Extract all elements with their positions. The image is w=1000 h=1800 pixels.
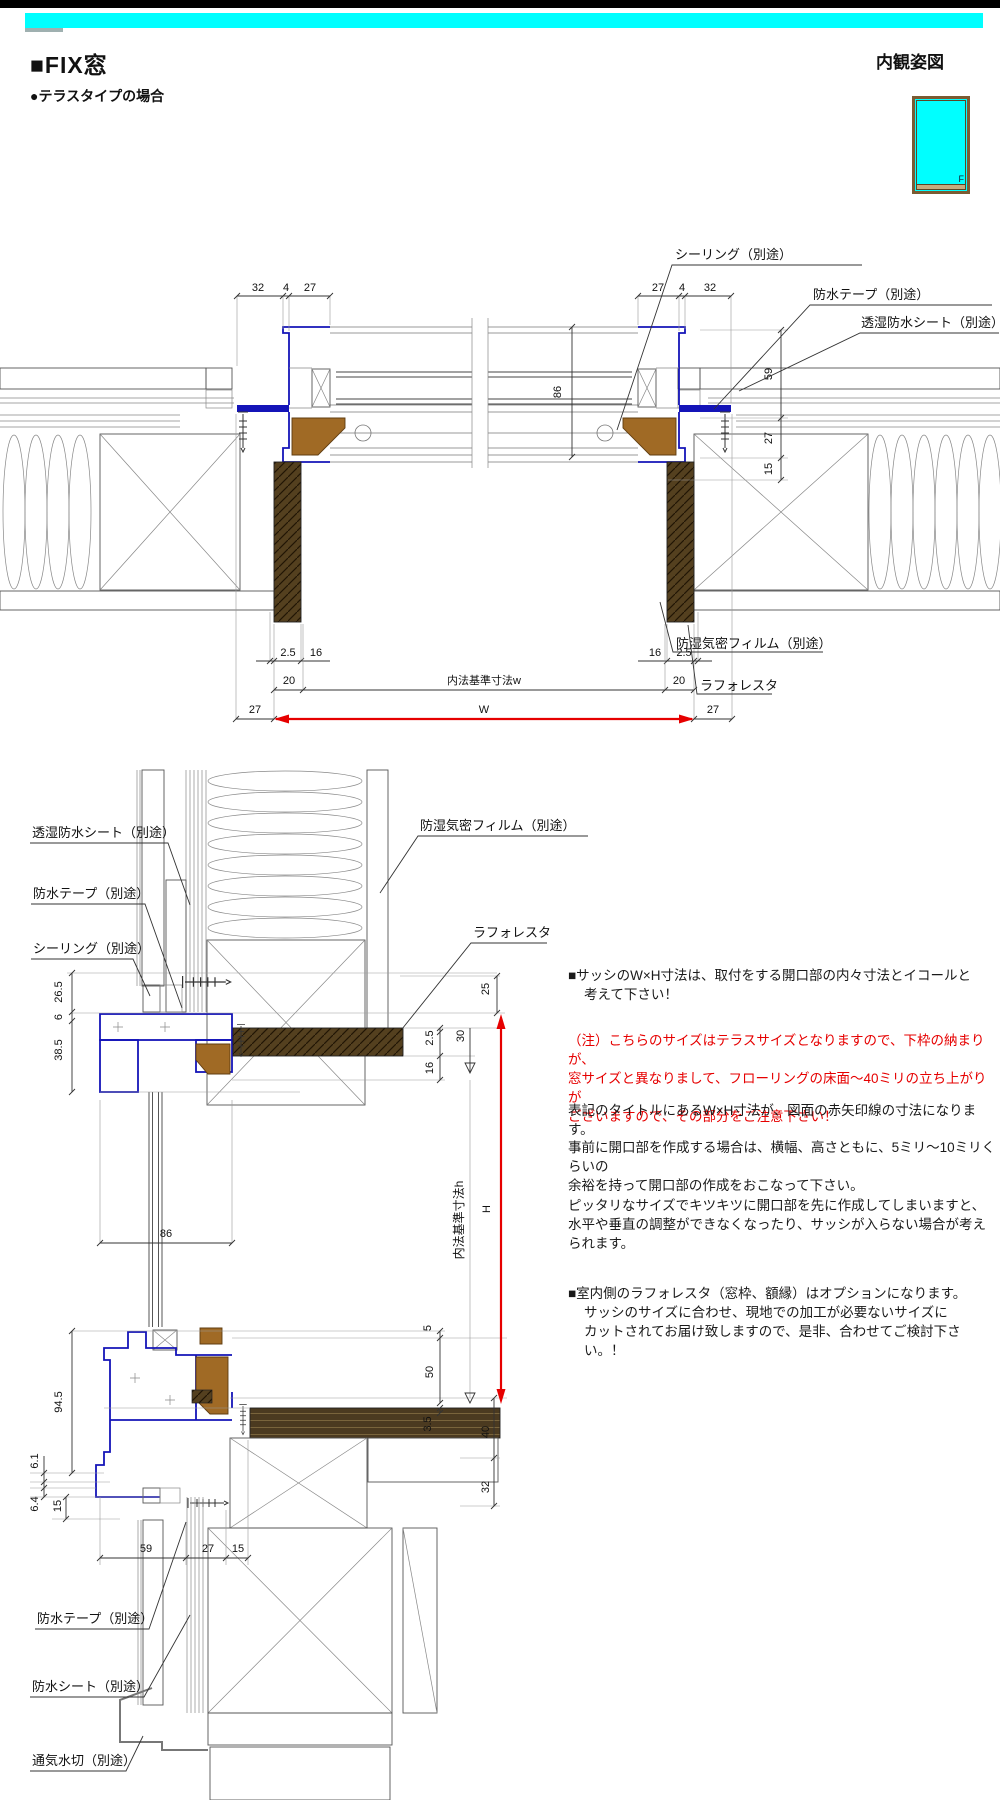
plan-left-wall [0, 368, 274, 610]
note-line: カットされてお届け致しますので、是非、合わせてご検討下さい。！ [568, 1322, 998, 1360]
plan-dim-glass: 86 [552, 324, 575, 460]
callout-sheet: 透湿防水シート（別途） [32, 825, 175, 840]
vert-floor [208, 1408, 500, 1800]
callout-laforesta: ラフォレスタ [700, 678, 778, 693]
dim-label: 3.5 [422, 1416, 434, 1431]
plan-dim-bottom-left: 2.5 16 [256, 612, 330, 719]
plan-right-insulation [869, 435, 1000, 589]
vert-sill-sealing [143, 1488, 160, 1503]
vert-callouts: 透湿防水シート（別途） 防水テープ（別途） シーリング（別途） 防湿気密フィルム… [30, 818, 588, 1771]
window-type-letter: F [959, 175, 965, 184]
dim-label: 27 [652, 282, 664, 294]
dim-label: H [481, 1205, 493, 1213]
dim-label: 4 [679, 282, 685, 294]
plan-left-fin [237, 405, 289, 412]
note-line: サッシのサイズに合わせ、現地での加工が必要ないサイズに [568, 1303, 998, 1322]
note-line: （注）こちらのサイズはテラスサイズとなりますので、下枠の納まりが、 [568, 1033, 984, 1067]
vert-glass [149, 1092, 177, 1350]
dim-label: 94.5 [53, 1391, 65, 1412]
dim-label: 27 [304, 282, 316, 294]
dim-label: 6.1 [29, 1453, 41, 1468]
callout-tape: 防水テープ（別途） [813, 287, 929, 302]
vert-bed-mortar [208, 1713, 392, 1745]
dim-label: 15 [52, 1500, 64, 1512]
dim-label: 6.4 [29, 1496, 41, 1511]
vert-dim-bottom: 59 27 15 [97, 1543, 251, 1561]
dim-label: 32 [480, 1481, 492, 1493]
fix-window-elevation-icon: F [912, 96, 970, 194]
dim-label: 27 [707, 704, 719, 716]
dim-label: 30 [455, 1030, 467, 1042]
note-tight-opening: ピッタリなサイズでキツキツに開口部を先に作成してしまいますと、 水平や垂直の調整… [568, 1196, 998, 1253]
note-line: られます。 [568, 1234, 998, 1253]
plan-left-siding [0, 368, 206, 389]
note-line: 事前に開口部を作成する場合は、横幅、高さともに、5ミリ～10ミリくらいの [568, 1140, 995, 1174]
vert-sill-bead [200, 1328, 222, 1344]
dim-label: 32 [704, 282, 716, 294]
note-line: ■室内側のラフォレスタ（窓枠、額縁）はオプションになります。 [568, 1286, 966, 1301]
dim-label: 27 [763, 432, 775, 444]
dim-label: 27 [249, 704, 261, 716]
plan-right-sealing [678, 368, 700, 389]
page: ■FIX窓 ●テラスタイプの場合 内観姿図 F [0, 0, 1000, 1800]
plan-dim-inner-width: 20 内法基準寸法w 20 [271, 624, 697, 693]
dim-label: 25 [480, 983, 492, 995]
vert-sill-backer [160, 1488, 180, 1503]
plan-left-gypsum [0, 591, 274, 610]
dim-label: 16 [424, 1062, 436, 1074]
note-red-arrow: 表記のタイトルにあるW×H寸法が、図面の赤矢印線の寸法になります。 [568, 1101, 998, 1139]
note-line: 余裕を持って開口部の作成をおこなって下さい。 [568, 1176, 998, 1195]
dim-label: 内法基準寸法w [447, 673, 521, 687]
plan-section-drawing: 32 4 27 27 4 32 86 59 27 15 2.5 [0, 230, 1000, 730]
vert-head-ext-leg [100, 1040, 138, 1092]
vert-flooring [250, 1408, 500, 1438]
callout-laforesta: ラフォレスタ [473, 925, 551, 940]
callout-flashing: 通気水切（別途） [32, 1753, 136, 1768]
vert-insulation [208, 771, 362, 938]
vert-underlay-crosshatch [368, 1438, 498, 1482]
note-line: 考えて下さい！ [568, 985, 998, 1004]
red-arrow-h [497, 1014, 506, 1404]
plan-left-trim [292, 418, 345, 455]
callout-sealing: シーリング（別途） [33, 941, 150, 956]
vert-sill-trim [196, 1357, 228, 1414]
note-line: 水平や垂直の調整ができなくなったり、サッシが入らない場合が考え [568, 1215, 998, 1234]
vert-dim-head: 26.5 6 38.5 [53, 970, 75, 1095]
dim-label: 50 [424, 1366, 436, 1378]
callout-film: 防湿気密フィルム（別途） [676, 636, 831, 651]
top-cyan-bar-shadow [25, 28, 63, 32]
dim-label: 26.5 [53, 981, 65, 1002]
plan-right-siding [700, 368, 1000, 389]
vert-gypsum-upper [367, 770, 388, 1028]
dim-label: 59 [140, 1543, 152, 1555]
page-subtitle: ●テラスタイプの場合 [30, 86, 164, 106]
dim-label: 16 [310, 647, 322, 659]
dim-label: 40 [480, 1426, 492, 1438]
dim-label: 5 [422, 1325, 434, 1331]
note-laforesta-option: ■室内側のラフォレスタ（窓枠、額縁）はオプションになります。 サッシのサイズに合… [568, 1284, 998, 1360]
dim-label: 15 [232, 1543, 244, 1555]
plan-left-backer [206, 390, 232, 408]
vert-foundation [210, 1747, 390, 1800]
vert-head-sealing [143, 985, 160, 1012]
top-cyan-bar [25, 13, 983, 28]
vert-dim-glass: 86 [97, 1228, 235, 1246]
plan-right-trim [623, 418, 676, 455]
vert-sill-block [192, 1390, 212, 1403]
callout-sealing: シーリング（別途） [675, 247, 792, 262]
vert-head-frame [100, 976, 403, 1092]
plan-dim-top-right: 27 4 32 [635, 282, 734, 403]
elevation-view-label: 内観姿図 [876, 48, 944, 73]
dim-label: 2.5 [424, 1030, 436, 1045]
dim-label: 内法基準寸法h [451, 1181, 466, 1260]
callout-film: 防湿気密フィルム（別途） [420, 818, 575, 833]
note-line: 表記のタイトルにあるW×H寸法が、図面の赤矢印線の寸法になります。 [568, 1103, 976, 1137]
vert-head-casing [233, 1028, 403, 1056]
vert-head-trim [196, 1044, 230, 1074]
dim-label: 2.5 [280, 647, 295, 659]
vert-ext-lines [30, 973, 507, 1565]
plan-left-sealing [206, 368, 232, 389]
dim-label: 32 [252, 282, 264, 294]
plan-glass-unit [312, 318, 656, 468]
note-sash-size: ■サッシのW×H寸法は、取付をする開口部の内々寸法とイコールと 考えて下さい！ [568, 966, 998, 1004]
callout-water-sheet: 防水シート（別途） [32, 1679, 149, 1694]
dim-label: 38.5 [53, 1039, 65, 1060]
screw-icon [188, 1498, 228, 1508]
plan-dim-top-left: 32 4 27 [234, 282, 333, 366]
dim-label: 20 [673, 675, 685, 687]
note-line: ピッタリなサイズでキツキツに開口部を先に作成してしまいますと、 [568, 1198, 985, 1213]
dim-label: 16 [649, 647, 661, 659]
plan-right-fin [679, 405, 731, 412]
dim-label: W [479, 704, 490, 716]
note-opening-margin: 事前に開口部を作成する場合は、横幅、高さともに、5ミリ～10ミリくらいの 余裕を… [568, 1138, 998, 1195]
top-black-rule [0, 0, 1000, 8]
callout-tape-top: 防水テープ（別途） [33, 886, 149, 901]
dim-label: 4 [283, 282, 289, 294]
vert-dim-sill: 94.5 6.1 6.4 15 [29, 1328, 75, 1522]
dim-label: 27 [202, 1543, 214, 1555]
plan-right-gypsum [668, 591, 1000, 610]
plan-left-casing [274, 462, 301, 622]
dim-label: 6 [53, 1014, 65, 1020]
plan-left-insulation [3, 435, 91, 589]
vert-sill-frame [96, 1328, 247, 1508]
dim-label: 20 [283, 675, 295, 687]
dim-label: 86 [160, 1228, 172, 1240]
screw-icon [239, 1405, 247, 1435]
callout-tape-bottom: 防水テープ（別途） [37, 1611, 153, 1626]
callout-sheet: 透湿防水シート（別途） [861, 315, 1000, 330]
vertical-section-drawing: 26.5 6 38.5 94.5 6.1 6.4 15 86 59 27 15 [0, 730, 1000, 1800]
page-title: ■FIX窓 [30, 46, 108, 80]
screw-icon [238, 412, 248, 452]
vert-dim-inner-height: 内法基準寸法h H [451, 1080, 493, 1403]
dim-label: 15 [763, 463, 775, 475]
note-line: ■サッシのW×H寸法は、取付をする開口部の内々寸法とイコールと [568, 968, 971, 983]
plan-right-casing [667, 462, 694, 622]
plan-dim-bottom-right: 16 2.5 [638, 612, 712, 719]
window-sill-bar [917, 184, 965, 189]
dim-label: 86 [552, 386, 564, 398]
